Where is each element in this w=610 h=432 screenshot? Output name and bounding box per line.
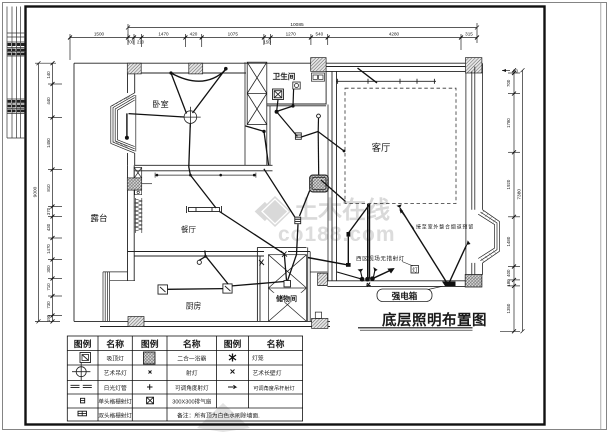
svg-text:1350: 1350 [506,303,511,313]
svg-text:315: 315 [465,32,473,37]
svg-text:140: 140 [46,71,51,79]
svg-text:强电箱: 强电箱 [392,290,418,301]
svg-text:700: 700 [127,40,135,45]
svg-text:灯笼: 灯笼 [252,354,264,362]
svg-text:可调角度吊杆射灯: 可调角度吊杆射灯 [253,384,295,392]
svg-text:名称: 名称 [106,338,124,349]
svg-text:210: 210 [137,40,145,45]
svg-text:接至室外整合烟道预留: 接至室外整合烟道预留 [416,224,474,231]
svg-text:图例: 图例 [224,338,242,349]
svg-text:1270: 1270 [286,32,297,37]
svg-text:300X300排气扇: 300X300排气扇 [172,397,212,405]
svg-text:底层照明布置图: 底层照明布置图 [382,311,487,329]
svg-text:储物间: 储物间 [275,294,297,303]
svg-text:名称: 名称 [267,338,285,349]
svg-text:420: 420 [190,32,198,37]
svg-text:1780: 1780 [506,118,511,128]
svg-text:土木在线: 土木在线 [294,196,390,224]
svg-text:810: 810 [46,184,51,192]
svg-text:艺术长壁灯: 艺术长壁灯 [253,369,282,377]
svg-text:灯: 灯 [412,266,418,274]
svg-text:10085: 10085 [290,22,304,28]
svg-text:1480: 1480 [506,236,511,246]
svg-text:日光灯管: 日光灯管 [104,384,127,392]
svg-text:备注：所有顶为白色水刷除墙面.: 备注：所有顶为白色水刷除墙面. [177,412,260,420]
svg-text:4280: 4280 [389,32,400,37]
svg-text:1470: 1470 [46,244,51,254]
svg-text:射灯: 射灯 [186,369,198,377]
svg-text:440: 440 [46,97,51,105]
svg-text:露台: 露台 [90,212,107,223]
svg-text:150: 150 [264,40,272,45]
svg-text:艺术吊灯: 艺术吊灯 [104,369,127,377]
svg-text:400: 400 [506,269,511,277]
svg-text:80: 80 [513,69,519,74]
svg-text:厨房: 厨房 [186,301,202,311]
svg-text:卧室: 卧室 [152,99,168,109]
svg-text:1450: 1450 [46,138,51,148]
svg-text:730: 730 [46,301,51,309]
svg-text:西区现场无措射灯: 西区现场无措射灯 [356,255,405,263]
svg-text:540: 540 [315,32,323,37]
svg-text:7380: 7380 [517,189,523,200]
svg-text:190: 190 [46,314,51,322]
svg-text:吸顶灯: 吸顶灯 [106,354,124,362]
svg-text:430: 430 [46,223,51,231]
svg-text:图例: 图例 [141,338,159,349]
svg-text:370: 370 [46,207,51,215]
svg-text:1500: 1500 [94,32,105,37]
svg-text:700: 700 [506,79,511,87]
svg-text:餐厅: 餐厅 [181,225,197,234]
svg-text:1075: 1075 [228,32,239,37]
svg-text:1470: 1470 [158,32,169,37]
svg-text:300: 300 [46,265,51,273]
svg-text:二合一浴霸: 二合一浴霸 [177,354,206,362]
svg-text:卫生间: 卫生间 [273,71,296,81]
svg-text:可调角度射灯: 可调角度射灯 [175,384,209,392]
svg-text:180: 180 [506,279,511,287]
svg-text:名称: 名称 [183,338,201,349]
svg-text:单头格栅射灯: 单头格栅射灯 [98,398,132,406]
svg-text:双头格栅射灯: 双头格栅射灯 [98,411,132,419]
svg-text:9000: 9000 [33,186,39,197]
svg-text:1920: 1920 [506,179,511,189]
svg-text:图例: 图例 [74,338,92,349]
svg-text:客厅: 客厅 [372,142,391,153]
svg-text:710: 710 [46,283,51,291]
